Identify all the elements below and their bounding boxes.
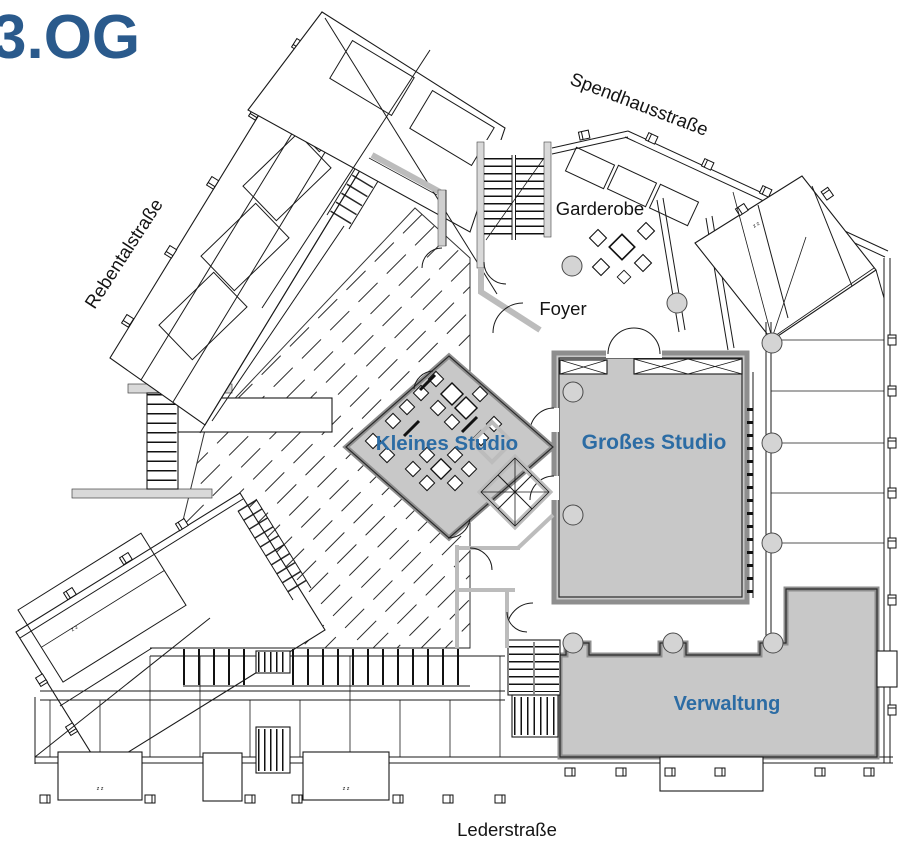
verwaltung-anchors (565, 768, 874, 776)
stairwell-south (507, 603, 560, 737)
page-title: 3.OG (0, 3, 140, 72)
detail-mark: z z (97, 786, 104, 792)
band-ladder-lower (256, 727, 290, 773)
street-label-spendhausstrasse: Spendhausstraße (567, 68, 711, 140)
floor-plan: z z (0, 0, 900, 850)
room-label-garderobe: Garderobe (556, 198, 644, 219)
room-label-verwaltung: Verwaltung (674, 693, 781, 715)
door-arc (507, 603, 533, 629)
door-arc (507, 612, 527, 632)
dormer-box (303, 752, 389, 800)
room-grosses-studio (530, 328, 753, 602)
room-label-kleines-studio: Kleines Studio (376, 432, 518, 455)
foyer-south-rooms (457, 515, 553, 648)
roof-truss (560, 359, 742, 374)
strip-room-dividers (771, 340, 884, 543)
room-label-foyer: Foyer (539, 298, 586, 319)
detail-mark: z z (343, 786, 350, 792)
dormer-box (58, 752, 142, 800)
room-label-grosses-studio: Großes Studio (582, 431, 727, 454)
door-arc (470, 548, 492, 570)
room-verwaltung (560, 589, 897, 791)
garderobe-table-group (590, 223, 655, 284)
street-label-lederstrasse: Lederstraße (457, 819, 557, 840)
band-ladder-upper (256, 651, 290, 673)
east-annex-box (877, 651, 897, 687)
dormer-box (203, 753, 242, 801)
